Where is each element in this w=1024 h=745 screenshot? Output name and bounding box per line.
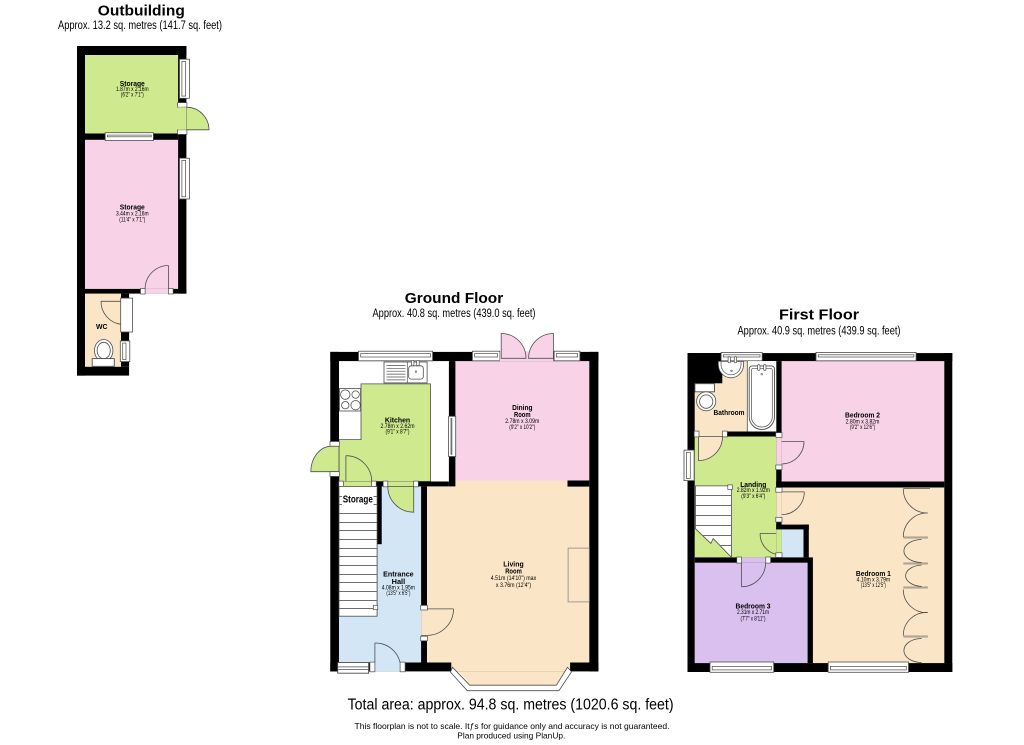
svg-text:Approx. 40.8 sq. metres (439.0: Approx. 40.8 sq. metres (439.0 sq. feet) <box>373 306 536 320</box>
svg-text:(9'2" x 12'6"): (9'2" x 12'6") <box>850 424 875 431</box>
svg-text:(9'1" x 8'7"): (9'1" x 8'7") <box>386 429 410 436</box>
svg-text:(9'3" x 6'4"): (9'3" x 6'4") <box>741 493 765 500</box>
svg-text:Storage: Storage <box>343 493 373 505</box>
svg-text:(13'5" x 12'5"): (13'5" x 12'5") <box>861 582 886 589</box>
svg-text:(13'5" x 6'5"): (13'5" x 6'5") <box>386 590 410 597</box>
svg-text:WC: WC <box>96 322 108 331</box>
svg-text:Bathroom: Bathroom <box>714 408 745 417</box>
svg-text:(11'4" x 7'1"): (11'4" x 7'1") <box>119 217 145 224</box>
svg-text:(6'2" x 7'1"): (6'2" x 7'1") <box>121 92 144 99</box>
svg-text:Ground Floor: Ground Floor <box>405 290 503 307</box>
svg-text:Approx. 40.9 sq. metres (439.9: Approx. 40.9 sq. metres (439.9 sq. feet) <box>738 324 901 338</box>
svg-text:x 3.76m (12'4"): x 3.76m (12'4") <box>496 582 531 589</box>
svg-text:4.51m (14'10") max: 4.51m (14'10") max <box>491 575 537 582</box>
svg-text:Total area: approx. 94.8 sq. m: Total area: approx. 94.8 sq. metres (102… <box>348 696 674 713</box>
svg-text:Plan produced using PlanUp.: Plan produced using PlanUp. <box>457 731 565 741</box>
svg-text:(9'2" x 10'2"): (9'2" x 10'2") <box>509 424 535 431</box>
svg-text:Outbuilding: Outbuilding <box>98 3 185 20</box>
svg-text:First Floor: First Floor <box>779 307 859 324</box>
svg-text:Approx. 13.2 sq. metres (141.7: Approx. 13.2 sq. metres (141.7 sq. feet) <box>58 18 222 32</box>
svg-text:(7'7" x 8'11"): (7'7" x 8'11") <box>741 615 766 622</box>
